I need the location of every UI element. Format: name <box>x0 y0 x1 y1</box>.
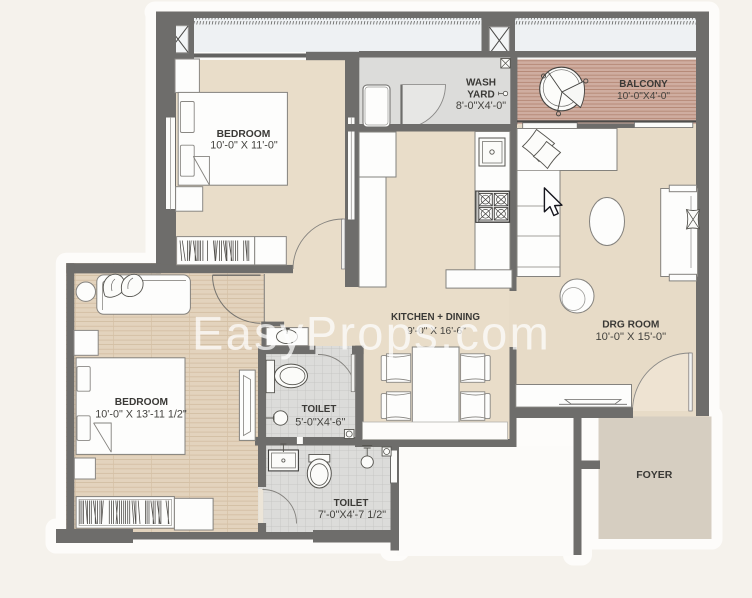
svg-text:TOILET: TOILET <box>302 404 337 415</box>
svg-text:5'-0"X4'-6": 5'-0"X4'-6" <box>295 417 345 429</box>
svg-text:WASH: WASH <box>466 78 496 89</box>
svg-text:10'-0" X 11'-0": 10'-0" X 11'-0" <box>210 140 278 152</box>
svg-text:10'-0" X 13'-11 1/2": 10'-0" X 13'-11 1/2" <box>95 408 187 420</box>
svg-text:BEDROOM: BEDROOM <box>115 397 168 408</box>
svg-text:BALCONY: BALCONY <box>619 79 668 90</box>
svg-text:7'-0"X4'-7 1/2": 7'-0"X4'-7 1/2" <box>318 509 386 521</box>
svg-text:DRG ROOM: DRG ROOM <box>602 319 659 330</box>
svg-text:10'-0" X 15'-0": 10'-0" X 15'-0" <box>595 331 666 343</box>
svg-text:8'-0"X4'-0": 8'-0"X4'-0" <box>456 100 506 112</box>
svg-text:FOYER: FOYER <box>636 469 673 481</box>
svg-text:TOILET: TOILET <box>334 498 369 509</box>
svg-text:EasyProps.com: EasyProps.com <box>192 306 551 359</box>
svg-text:10'-0"X4'-0": 10'-0"X4'-0" <box>617 91 670 102</box>
svg-text:BEDROOM: BEDROOM <box>217 129 271 140</box>
